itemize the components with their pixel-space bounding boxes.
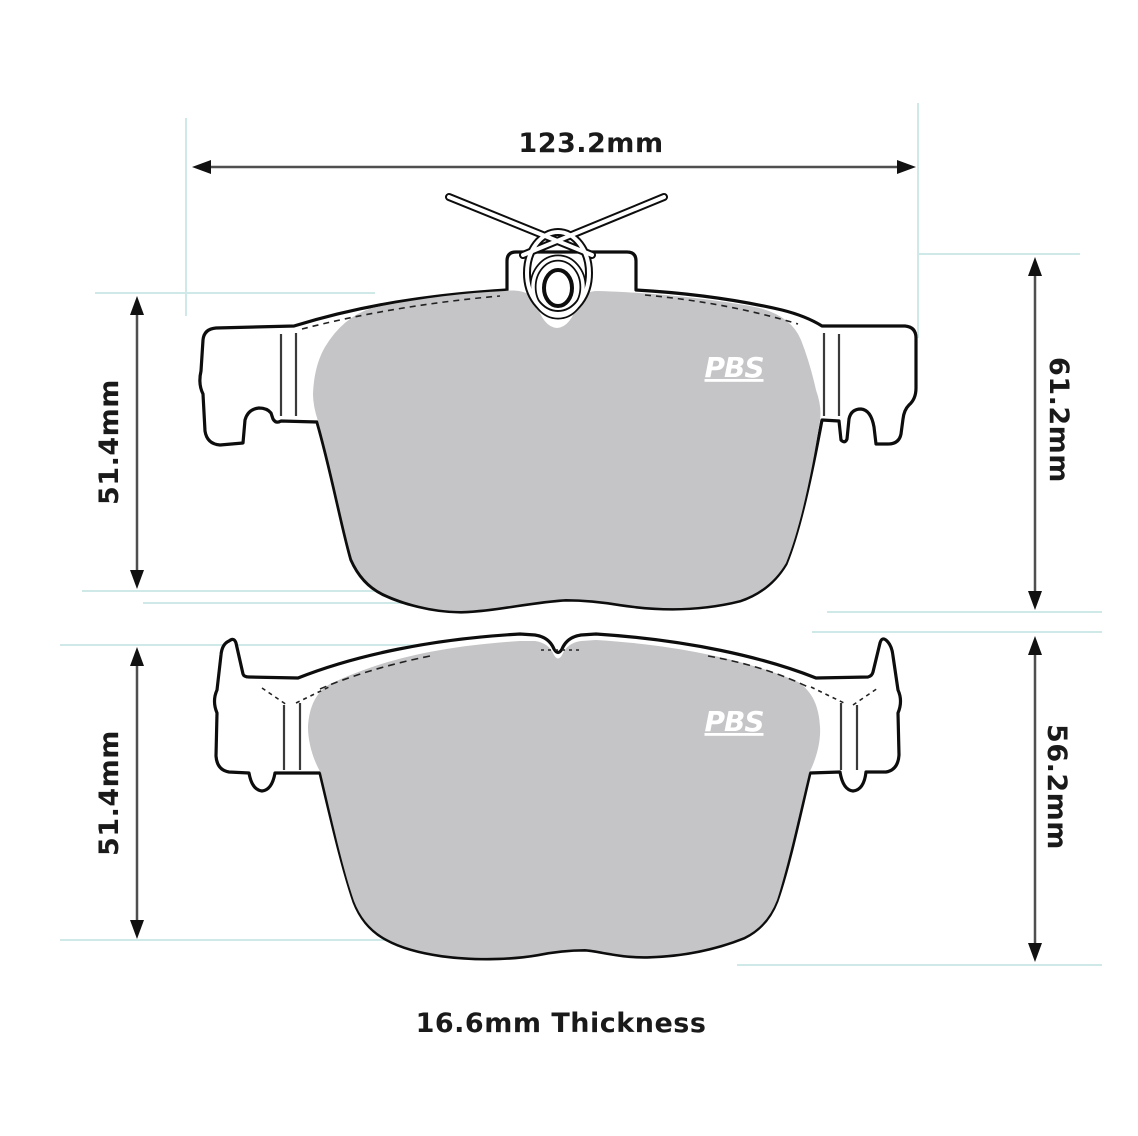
- bottom-pad-drawing: PBS: [215, 634, 901, 959]
- bottom-pad-right-dimension-label: 56.2mm: [1041, 687, 1071, 887]
- pbs-logo-top: PBS: [704, 351, 763, 384]
- bottom-pad-left-dimension-label: 51.4mm: [95, 693, 125, 893]
- bottom-pad-friction-material: [308, 640, 820, 958]
- pad-drawing-canvas: PBS PBS: [0, 0, 1138, 1136]
- width-dimension-label: 123.2mm: [441, 128, 741, 159]
- top-pad-drawing: PBS: [200, 197, 916, 612]
- spring-eye-hole: [544, 270, 572, 306]
- top-pad-left-dimension-label: 51.4mm: [95, 342, 125, 542]
- brake-pad-dimension-drawing: PBS PBS: [0, 0, 1138, 1136]
- top-pad-right-dimension-label: 61.2mm: [1043, 320, 1073, 520]
- pbs-logo-bottom: PBS: [704, 705, 763, 738]
- thickness-caption: 16.6mm Thickness: [411, 1008, 711, 1039]
- top-pad-friction-material: [313, 290, 821, 611]
